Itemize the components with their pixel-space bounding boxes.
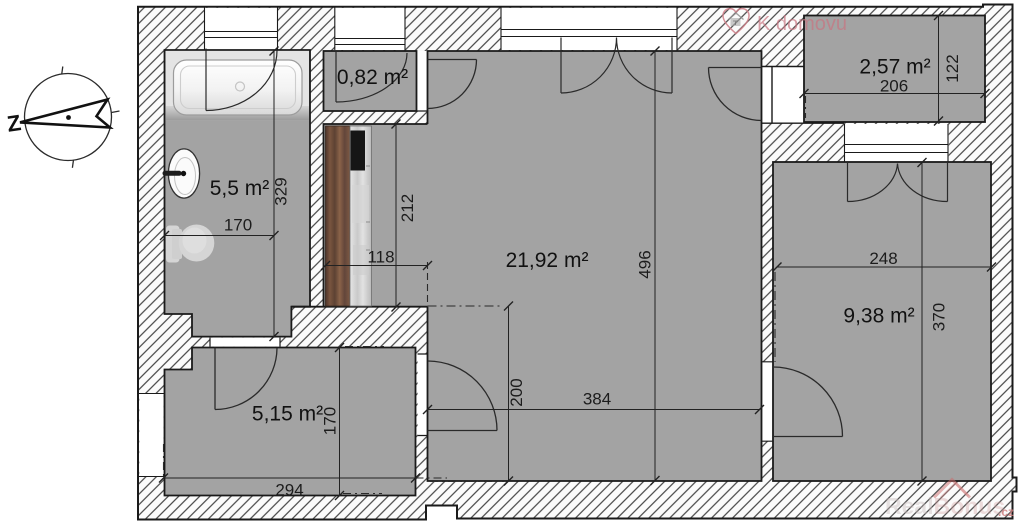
svg-text:2,57 m²: 2,57 m² bbox=[859, 56, 930, 79]
svg-text:212: 212 bbox=[398, 194, 417, 222]
svg-text:5,15 m²: 5,15 m² bbox=[252, 403, 323, 426]
svg-text:122: 122 bbox=[943, 54, 962, 82]
svg-text:496: 496 bbox=[636, 250, 655, 278]
svg-text:170: 170 bbox=[321, 407, 340, 435]
svg-text:.cz: .cz bbox=[998, 505, 1014, 519]
svg-text:RealBonus: RealBonus bbox=[885, 493, 1005, 519]
svg-text:329: 329 bbox=[272, 177, 291, 205]
svg-text:118: 118 bbox=[367, 248, 394, 267]
svg-text:370: 370 bbox=[930, 303, 949, 331]
svg-text:206: 206 bbox=[880, 77, 908, 96]
svg-text:200: 200 bbox=[507, 378, 526, 406]
svg-text:9,38 m²: 9,38 m² bbox=[843, 305, 914, 328]
svg-text:0,82 m²: 0,82 m² bbox=[337, 66, 408, 89]
svg-text:248: 248 bbox=[869, 249, 897, 268]
svg-text:294: 294 bbox=[275, 481, 303, 500]
svg-text:384: 384 bbox=[583, 390, 611, 409]
svg-text:21,92 m²: 21,92 m² bbox=[506, 249, 589, 272]
svg-text:K domovu: K domovu bbox=[757, 13, 847, 35]
svg-text:5,5 m²: 5,5 m² bbox=[210, 177, 270, 200]
svg-text:170: 170 bbox=[224, 216, 252, 235]
